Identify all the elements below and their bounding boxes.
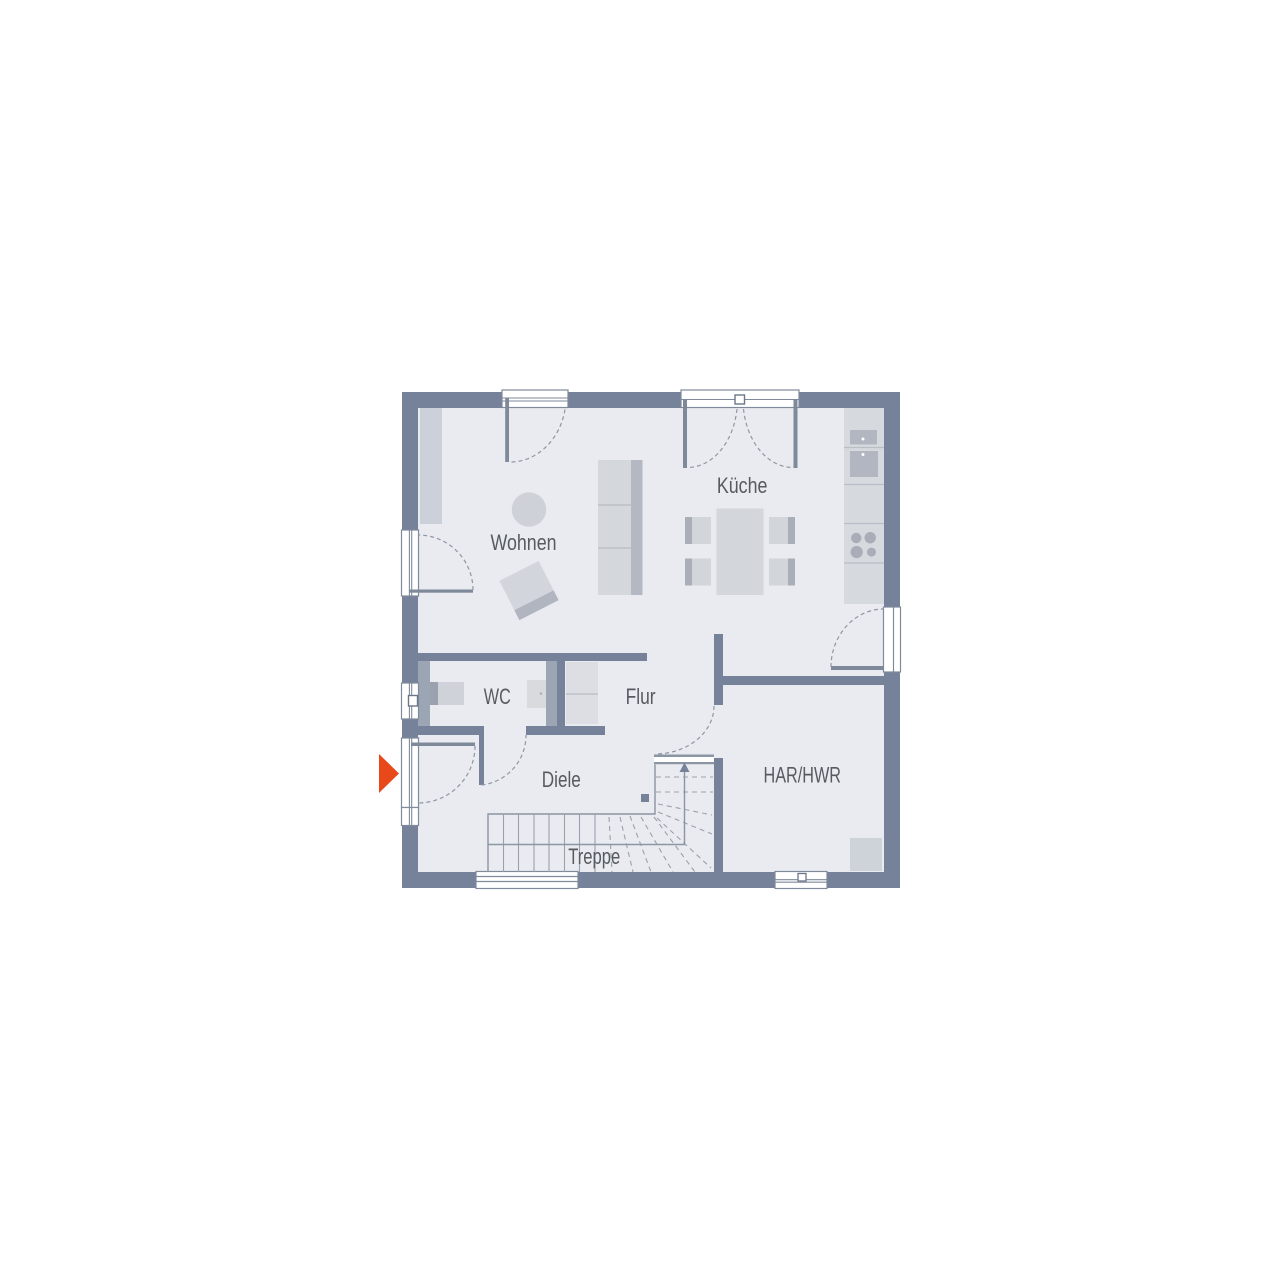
svg-text:Diele: Diele (542, 767, 581, 792)
svg-text:Treppe: Treppe (568, 844, 620, 869)
svg-text:Flur: Flur (626, 684, 656, 709)
svg-text:HAR/HWR: HAR/HWR (764, 762, 842, 787)
svg-text:WC: WC (484, 684, 511, 709)
svg-text:Küche: Küche (717, 473, 768, 498)
svg-text:Wohnen: Wohnen (491, 530, 557, 555)
